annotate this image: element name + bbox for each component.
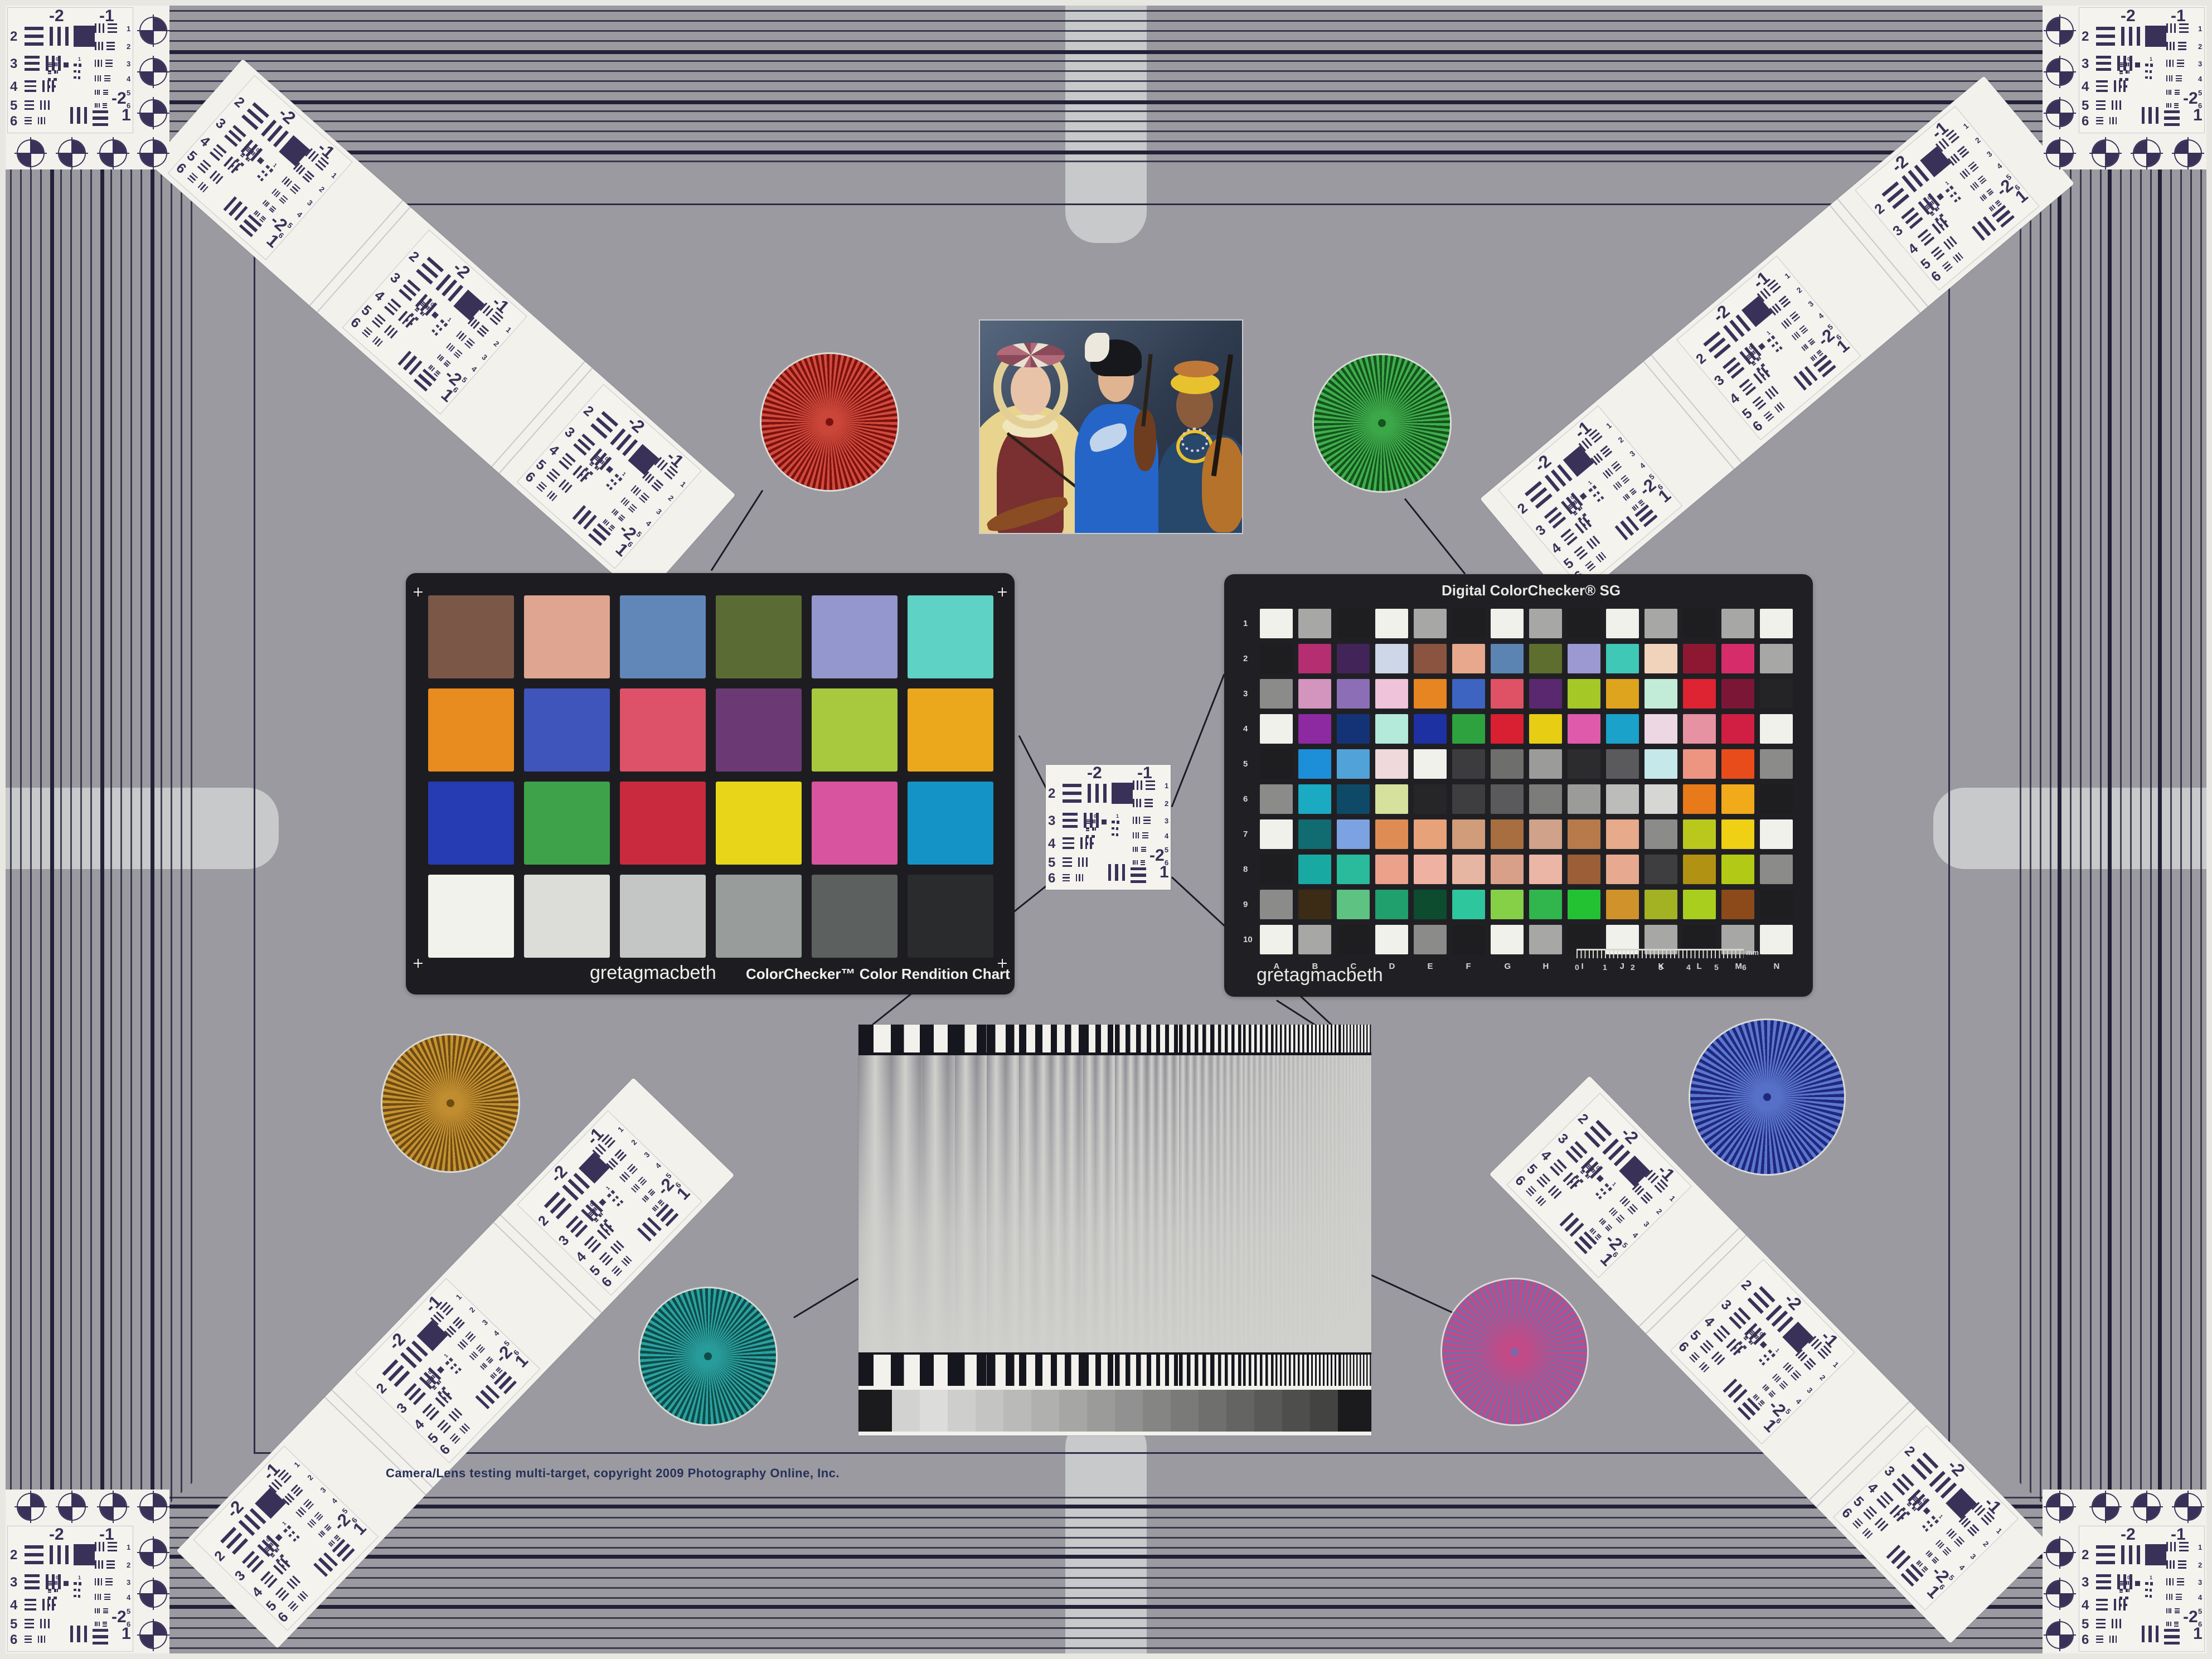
bar [2178,45,2186,47]
bar [1146,780,1155,782]
bar [2096,100,2106,102]
usaf-square [599,1199,606,1206]
bar [48,1605,50,1607]
usaf-label: 4 [1995,162,2003,170]
color-patch [1568,644,1600,673]
bar [2096,42,2115,46]
usaf-label: 4 [10,80,17,94]
bar [40,100,42,110]
test-chart-photo: Camera/Lens testing multi-target, copyri… [0,0,2212,1659]
bar [57,1545,61,1564]
plus-mark [414,588,423,596]
bar [106,1567,115,1569]
bar [25,80,36,83]
bar [2166,75,2167,81]
usaf-label: 1 [1995,1526,2004,1535]
usaf-label: 5 [127,1608,130,1615]
bar [78,78,80,79]
usaf-label: 2 [1694,351,1709,367]
headwrap [1174,361,1219,377]
usaf-label: 3 [1534,522,1549,538]
bar [621,1201,623,1204]
color-patch [1606,784,1639,814]
bar [57,27,61,46]
bar [65,27,69,46]
bar [103,1626,107,1627]
color-patch [1645,784,1677,814]
wedge-step [1031,1390,1059,1432]
bar [2096,68,2111,71]
color-patch [716,875,802,958]
bar [2164,117,2180,119]
color-patch [1568,784,1600,814]
usaf-label: 1 [1165,782,1168,789]
bar [98,1560,100,1569]
usaf-label: 6 [1048,872,1055,885]
usaf-label: -2 [331,1511,354,1534]
cello [1202,438,1242,532]
bar [95,75,96,81]
col-label: E [1428,962,1433,971]
bar [25,1619,34,1621]
bar [106,1560,115,1562]
color-patch [812,875,898,958]
bar [103,1608,108,1609]
usaf-label: -2 [450,259,473,282]
wedge-step [1087,1390,1115,1432]
bar [2171,1594,2172,1600]
usaf-square [1920,146,1951,177]
color-patch [1529,819,1562,849]
usaf-label: 1 [512,1352,531,1371]
usaf-label: 2 [1902,1444,1918,1459]
usaf-label: 1 [1597,1250,1616,1269]
usaf-label: -1 [2171,1526,2186,1543]
usaf-label: 1 [1774,1348,1780,1354]
col-label: N [1774,962,1780,971]
bar [1141,780,1142,790]
ruler-unit: mm [1746,949,1759,956]
bar [77,107,80,124]
bar [1139,799,1141,807]
usaf-square [64,1581,69,1586]
blue-star [1690,1020,1844,1174]
bar [2169,75,2170,81]
color-patch [1529,855,1562,884]
usaf-label: 1 [351,1520,370,1539]
bar [25,1638,32,1639]
bar [48,1599,51,1600]
bar [2096,27,2115,30]
bar [2142,107,2145,124]
usaf-label: 2 [468,1306,476,1314]
usaf-square [579,1152,610,1183]
bar [65,1545,69,1564]
usaf-label: 3 [394,1401,410,1416]
bar [1131,880,1146,883]
ruler-number: 6 [1742,963,1747,971]
bar [48,64,52,65]
usaf-label: 6 [275,1610,291,1625]
bar [2150,72,2152,73]
bar [2096,123,2103,124]
color-patch [812,595,898,678]
cross-v [71,137,72,169]
color-patch [1606,890,1639,919]
bar [2119,80,2122,81]
star-center-dot [1763,1093,1771,1101]
usaf-label: 2 [10,30,17,43]
bar [1134,860,1136,865]
bar [2127,78,2128,81]
cross-v [153,14,154,47]
star-center-dot [447,1099,454,1107]
bar [2096,1561,2115,1564]
sweep-segment [1019,1025,1052,1052]
bar [106,42,115,43]
usaf-label: 3 [127,1579,130,1586]
bar [93,123,108,126]
usaf-label: 3 [319,1486,327,1494]
usaf-square [255,1488,286,1519]
cross-v [2059,14,2060,47]
bar [2150,1590,2152,1592]
bar [44,100,46,110]
sweep-segment [1275,1025,1308,1052]
bar [2119,64,2123,65]
bar [104,1594,110,1595]
color-patch [1568,749,1600,779]
bar [96,1622,98,1626]
sweep-segment [1147,1355,1180,1386]
color-patch [1721,749,1754,779]
usaf-label: 5 [1561,556,1576,571]
usaf-label: -2 [1602,1231,1626,1254]
usaf-label: 1 [2193,1626,2203,1642]
color-patch [1760,644,1793,673]
usaf-label: 2 [127,1561,130,1569]
bar [25,104,34,106]
usaf-label: 6 [173,161,188,176]
usaf-label: 6 [2082,115,2089,128]
bar [2126,1604,2127,1606]
bar [105,1584,113,1585]
registration-mark-icon [56,137,88,169]
col-label: H [1543,962,1549,971]
cross-v [153,97,154,129]
sweep-segment [858,1355,891,1386]
color-patch [524,782,610,865]
color-patch [1529,925,1562,954]
bar [25,1574,40,1577]
bar [99,1608,100,1613]
star-center-dot [826,418,833,426]
bar [1131,867,1146,870]
bar [55,1604,56,1606]
bar [2177,62,2184,64]
bar [38,117,39,124]
usaf-label: 6 [1929,269,1944,284]
color-patch [1414,714,1447,744]
color-patch [1568,819,1600,849]
bar [97,1608,98,1613]
bar [2096,120,2103,121]
usaf-resolution-target: -2-12345612345601-21 [1046,765,1171,890]
cross-v [153,137,154,169]
usaf-label: -2 [111,90,127,107]
bar [55,1581,56,1585]
bar [1143,823,1151,824]
color-patch [620,875,706,958]
usaf-label: -2 [1637,476,1660,499]
cross-v [2059,1578,2060,1610]
bar [1086,821,1090,822]
bar [104,1597,110,1598]
usaf-label: 3 [556,1233,572,1248]
color-patch [1645,819,1677,849]
color-patch [1452,890,1485,919]
bar [1143,819,1151,821]
bar [105,1581,113,1582]
usaf-label: 2 [406,249,421,265]
bar [2096,62,2111,65]
usaf-label: 5 [2082,1618,2089,1631]
bar [1063,877,1070,878]
color-patch [1645,679,1677,709]
registration-mark-icon [2044,1536,2076,1569]
usaf-label: 4 [127,1594,130,1601]
usaf-label: 6 [522,469,537,485]
bar [1597,1194,1599,1196]
bar-sweep-row [858,1355,1371,1386]
color-patch [1452,925,1485,954]
bar [2119,1592,2123,1593]
bar [1144,802,1153,804]
bar [1095,784,1099,803]
color-patch [908,595,993,678]
bar [2174,1623,2179,1624]
bar [2174,107,2179,108]
usaf-label: 1 [621,472,627,477]
usaf-label: -2 [2183,90,2198,107]
usaf-label: 0 [56,57,59,62]
bar [99,1542,100,1551]
bar [105,60,113,61]
row-label: 7 [1243,830,1248,838]
usaf-label: 1 [1944,181,1950,187]
bar [2119,1619,2121,1628]
color-patch [1683,819,1716,849]
bar [2109,117,2111,124]
cross-v [2059,1619,2060,1651]
wedge-step [1115,1390,1143,1432]
usaf-label: -2 [1993,177,2016,200]
usaf-square [2135,62,2140,67]
bar [2176,75,2182,76]
color-patch [1529,714,1562,744]
usaf-label: -1 [1981,1494,2004,1517]
bar [1113,833,1114,836]
bar [2171,75,2172,81]
bar [2170,1560,2171,1569]
color-patch [1529,609,1562,638]
color-patch [716,782,802,865]
bar [48,80,51,81]
bar [2096,1545,2115,1549]
color-patch [620,595,706,678]
bar [48,1619,50,1628]
bar [1079,874,1080,881]
bar [1602,497,1604,499]
usaf-label: 4 [1794,1397,1803,1405]
bar [101,1560,103,1569]
bar [1116,829,1118,830]
usaf-square [74,26,95,47]
flower-crown [997,343,1065,367]
wedge-step [1171,1390,1199,1432]
color-patch [1760,714,1793,744]
color-patch [1298,679,1331,709]
usaf-label: 1 [1611,1181,1617,1187]
bar [25,1580,40,1583]
color-patch [1529,890,1562,919]
registration-mark-icon [2089,137,2122,169]
usaf-label: -2 [2121,1526,2136,1543]
color-patch [1606,855,1639,884]
color-patch [1760,679,1793,709]
bar [104,80,110,81]
usaf-label: 2 [2198,1561,2202,1569]
bar [48,100,50,110]
color-patch [1760,609,1793,638]
bar [2119,87,2122,88]
bar [25,1636,32,1637]
ruler: 0123456mm [1576,949,1756,974]
color-patch [1491,819,1524,849]
bar [1063,847,1074,849]
registration-mark-icon [137,14,169,47]
sweep-segment [891,1355,924,1386]
usaf-label: -2 [224,1498,247,1521]
bar [2170,90,2171,95]
usaf-label: 6 [438,1442,453,1457]
usaf-label: 0 [2127,57,2130,62]
bar [2096,1574,2111,1577]
bar [104,75,110,76]
sweep-segment [955,1025,988,1052]
corner-target-bottom-right: -2-12345612345601-21 [2043,1490,2208,1655]
bar [2177,1578,2184,1579]
color-patch [1298,609,1331,638]
v [418,588,419,596]
usaf-label: 1 [1783,271,1791,280]
bar [1136,832,1137,838]
bar [1575,1185,1577,1187]
usaf-label: 1 [1832,1360,1840,1369]
brand-text: gretagmacbeth [1257,966,1383,984]
usaf-label: 2 [1982,1540,1990,1548]
bar [2166,1578,2167,1585]
bar [44,1636,45,1643]
bar [1780,347,1783,350]
bar [98,42,100,50]
ruler-number: 4 [1686,963,1691,971]
col-label: G [1505,962,1511,971]
bar [2096,1627,2106,1628]
usaf-label: 6 [10,1633,17,1647]
bar [103,103,107,104]
cross-v [2146,1491,2147,1523]
wedge-step [976,1390,1003,1432]
bar [585,478,588,480]
row-label: 9 [1243,900,1248,909]
bar [2166,90,2167,95]
cross-v [153,1619,154,1651]
bar [1133,799,1134,807]
usaf-label: 5 [588,1263,603,1278]
usaf-label: 2 [2198,43,2202,50]
color-patch [1606,714,1639,744]
bar [1144,799,1153,801]
bar [2177,60,2184,61]
color-patch [1337,749,1370,779]
bar [2156,107,2158,124]
bar [1063,799,1081,803]
color-patch [1414,644,1447,673]
bar [1141,864,1145,865]
usaf-label: -2 [1781,1291,1804,1314]
usaf-label: 1 [1938,1514,1943,1520]
usaf-label: 3 [1806,1386,1814,1394]
usaf-label: 3 [481,1318,489,1326]
usaf-square [275,1534,283,1541]
usaf-label: 3 [481,353,489,361]
usaf-label: 1 [331,171,339,180]
ruler-number: 2 [1631,963,1635,971]
wedge-step [892,1390,920,1432]
color-patch [1491,784,1524,814]
bar [41,1636,42,1643]
bar [617,1197,619,1199]
color-patch [620,688,706,772]
bar [95,1542,96,1551]
usaf-label: 1 [2150,57,2152,62]
usaf-label: 2 [232,95,247,110]
bar [2164,110,2180,113]
color-patch [1375,819,1408,849]
bar [106,45,115,47]
bar [1094,819,1095,823]
bar [1954,193,1957,195]
usaf-square [1102,819,1107,824]
wedge-cap [1338,1390,1371,1432]
color-patch [1298,644,1331,673]
usaf-label: 6 [599,1274,615,1289]
bar [101,1578,102,1585]
corner-target-top-right: -2-12345612345601-21 [2043,4,2208,169]
bar [98,1594,99,1600]
bar [96,103,98,108]
usaf-label: 4 [250,1585,265,1600]
bar [2176,80,2182,81]
bar [2177,1584,2184,1585]
color-patch [1606,609,1639,638]
bar [1086,844,1088,845]
gold-star [382,1035,518,1171]
color-patch [524,875,610,958]
usaf-label: 3 [387,270,402,286]
usaf-label: -2 [624,413,647,436]
